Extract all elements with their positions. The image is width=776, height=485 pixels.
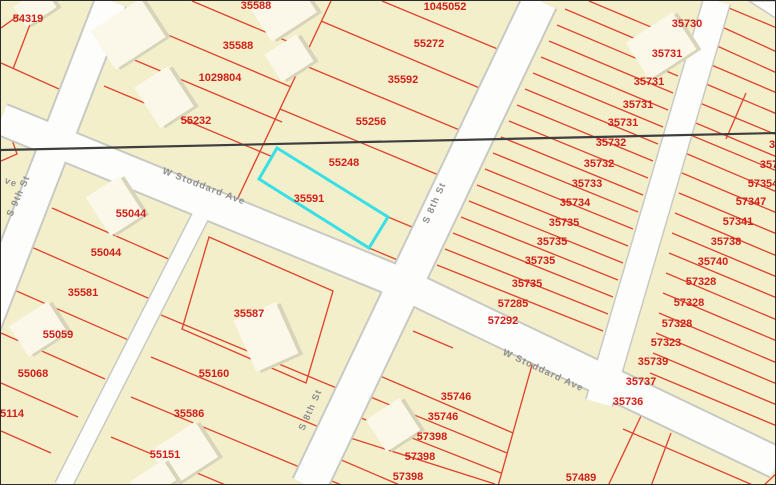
parcel-label: 35738: [711, 236, 742, 248]
parcel-label: 35735: [525, 255, 556, 267]
parcel-label: 57398: [417, 431, 448, 443]
street-corner-ne: [749, 1, 776, 19]
parcel-label: 35735: [549, 217, 580, 229]
map-canvas[interactable]: 54319 35588 35588 1029804 55232 1045052 …: [1, 1, 776, 485]
parcel-label: 35736: [613, 396, 644, 408]
parcel-label: 57489: [566, 472, 597, 484]
parcel-label: 35746: [441, 391, 472, 403]
parcel-label: 35735: [537, 236, 568, 248]
parcel-label: 35581: [68, 287, 99, 299]
parcel-label: 55272: [414, 38, 445, 50]
parcel-label: 57292: [488, 315, 519, 327]
parcel-label: 55068: [18, 368, 49, 380]
parcel-label: 35586: [174, 408, 205, 420]
parcel-label: 57323: [651, 337, 682, 349]
parcel-label: 35592: [388, 74, 419, 86]
parcel-label: 35737: [626, 376, 657, 388]
parcel-label: 57285: [498, 298, 529, 310]
parcel-label: 35588: [223, 40, 254, 52]
parcel-label: 57328: [662, 318, 693, 330]
parcel-label-fragment: 357: [760, 159, 776, 171]
parcel-label: 55160: [199, 368, 230, 380]
parcel-label: 35731: [634, 76, 665, 88]
parcel-label: 35731: [652, 48, 683, 60]
parcel-label: 57328: [674, 297, 705, 309]
parcel-map[interactable]: 54319 35588 35588 1029804 55232 1045052 …: [0, 0, 776, 485]
parcel-label: 54319: [13, 13, 44, 25]
parcel-label: 55059: [43, 329, 74, 341]
parcel-label: 57341: [723, 216, 754, 228]
parcel-label: 35734: [560, 197, 591, 209]
parcel-label: 35731: [608, 117, 639, 129]
parcel-label: 35732: [584, 158, 615, 170]
parcel-label-selected: 35591: [294, 193, 325, 205]
parcel-label: 57398: [405, 451, 436, 463]
parcel-label: 35587: [234, 308, 265, 320]
parcel-label: 35746: [428, 411, 459, 423]
parcel-label: 55151: [150, 449, 181, 461]
parcel-label: 35588: [241, 1, 272, 12]
parcel-label: 35731: [623, 99, 654, 111]
parcel-label-fragment: 3: [769, 139, 775, 151]
parcel-label: 55232: [181, 115, 212, 127]
parcel-label: 57398: [393, 471, 424, 483]
parcel-label: 35740: [698, 256, 729, 268]
parcel-label: 35733: [572, 178, 603, 190]
parcel-label: 1045052: [424, 1, 467, 13]
parcel-label: 35732: [596, 137, 627, 149]
parcel-label: 35730: [672, 18, 703, 30]
parcel-label: 57328: [686, 276, 717, 288]
parcel-label: 57347: [736, 196, 767, 208]
parcel-label: 55256: [356, 116, 387, 128]
parcel-label: 57354: [748, 178, 776, 190]
parcel-label: 55248: [329, 157, 360, 169]
parcel-label: 35739: [638, 356, 669, 368]
parcel-label-clipped: 55114: [1, 408, 25, 420]
parcel-label: 55044: [116, 208, 147, 220]
parcel-label: 35735: [512, 278, 543, 290]
parcel-label: 55044: [91, 247, 122, 259]
parcel-label: 1029804: [199, 72, 243, 84]
